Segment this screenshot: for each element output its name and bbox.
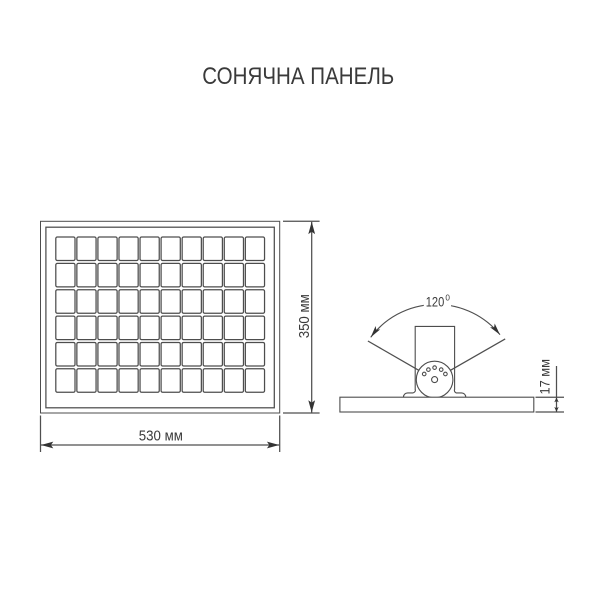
- svg-text:0: 0: [445, 293, 450, 302]
- svg-text:120: 120: [426, 295, 445, 311]
- svg-text:530 мм: 530 мм: [139, 429, 183, 445]
- svg-text:350 мм: 350 мм: [297, 294, 313, 338]
- svg-text:17 мм: 17 мм: [538, 359, 554, 395]
- svg-text:СОНЯЧНА ПАНЕЛЬ: СОНЯЧНА ПАНЕЛЬ: [202, 64, 394, 90]
